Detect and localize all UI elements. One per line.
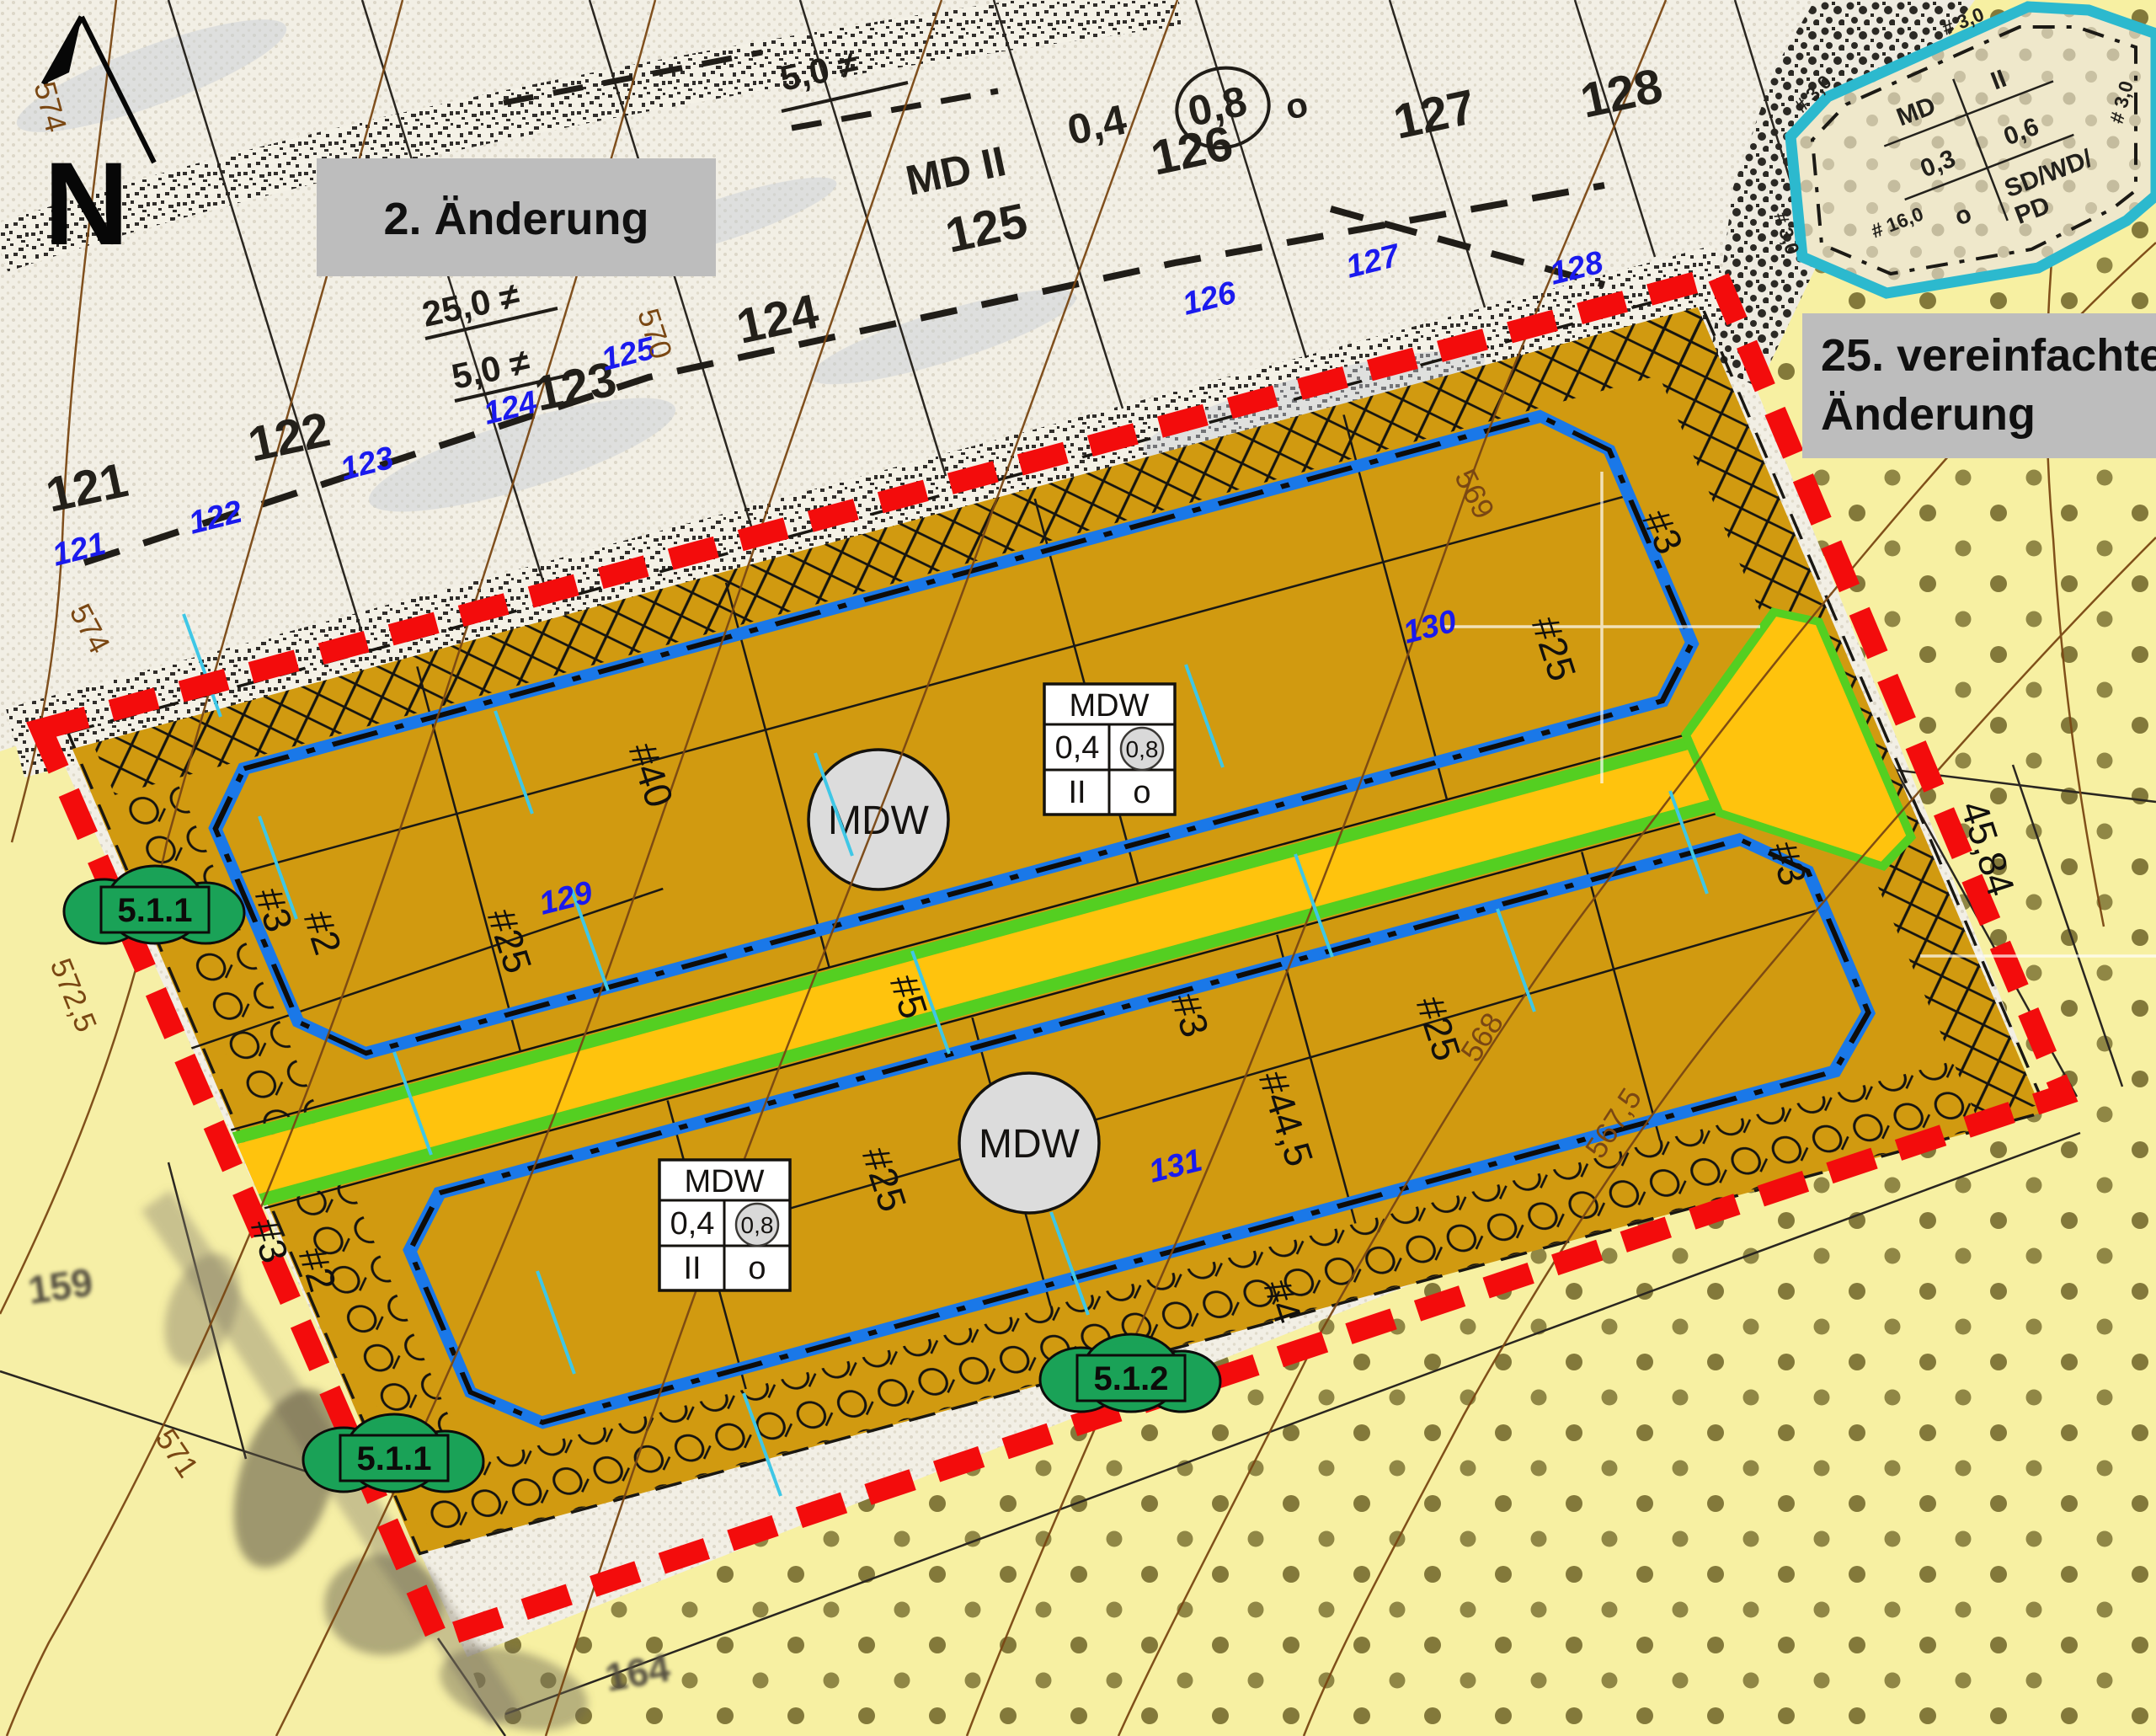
mdw-t1-open: o [1133,775,1150,810]
zoning-plan-map: MDW MDW MD II 0,3 0,6 o SD/WD/ PD # 16,0… [0,0,2156,1736]
change2-label: 2. Änderung [383,194,648,244]
change25-line2: Änderung [1821,389,2036,440]
mdw-t1-grz: 0,4 [1055,730,1100,766]
annotation-box-change2: 2. Änderung [317,158,716,276]
marker-511-b-label: 5.1.1 [357,1440,432,1477]
mdw-circle-1-label: MDW [828,799,930,843]
change25-line1: 25. vereinfachte [1821,330,2156,381]
marker-511-a-label: 5.1.1 [118,892,193,929]
marker-512-label: 5.1.2 [1094,1360,1169,1397]
bg-parcel-159: 159 [25,1260,95,1312]
mdw-t2-gfz: 0,8 [741,1212,774,1238]
mdw-circle-2-label: MDW [979,1122,1081,1167]
north-letter: N [44,137,129,270]
mdw-table-2: MDW 0,4 0,8 II o [659,1160,790,1290]
annotation-box-change25: 25. vereinfachte Änderung [1802,313,2156,458]
mdw-t2-title: MDW [685,1164,765,1199]
plan-can# vas: MDW MDW MD II 0,3 0,6 o SD/WD/ PD # 16,0… [0,0,2156,1736]
mdw-t1-title: MDW [1070,688,1150,724]
mdw-t2-open: o [748,1251,766,1286]
mdw-t2-floors: II [683,1251,701,1286]
mdw-t1-gfz: 0,8 [1126,736,1159,762]
mdw-table-1: MDW 0,4 0,8 II o [1044,684,1175,815]
mdw-t2-grz: 0,4 [670,1206,715,1242]
mdw-t1-floors: II [1068,775,1086,810]
